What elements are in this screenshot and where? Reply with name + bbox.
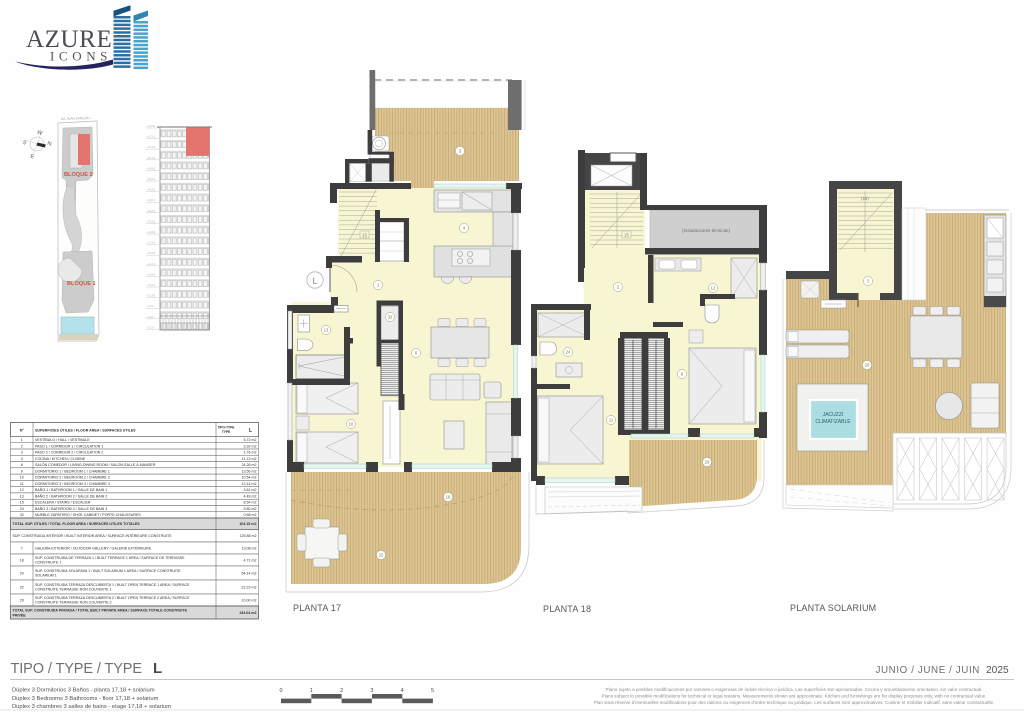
svg-text:+48.00: +48.00	[147, 166, 156, 170]
svg-text:13.14 m2: 13.14 m2	[242, 482, 257, 486]
svg-text:0.68 m2: 0.68 m2	[244, 513, 257, 517]
svg-text:MUEBLE ZAPATERO / SHOE CABINET: MUEBLE ZAPATERO / SHOE CABINET / PORTE-C…	[35, 513, 141, 517]
svg-text:L: L	[312, 276, 317, 286]
svg-text:SUPERFICIES ÚTILES / FLOOR ARE: SUPERFICIES ÚTILES / FLOOR AREA / SURFAC…	[35, 428, 136, 433]
svg-text:Plano sujeto a posibles modifi: Plano sujeto a posibles modificaciones p…	[606, 687, 983, 692]
svg-text:SUP. CONSTRUIDA DE TERRAZA 1 /: SUP. CONSTRUIDA DE TERRAZA 1 / BUILT TER…	[35, 556, 185, 560]
svg-text:15: 15	[362, 233, 367, 238]
svg-text:54.14 m2: 54.14 m2	[242, 571, 257, 575]
svg-text:+21.10: +21.10	[147, 262, 156, 266]
svg-text:ICONS: ICONS	[50, 49, 112, 64]
svg-text:104.15 m2: 104.15 m2	[239, 522, 256, 526]
svg-text:20: 20	[865, 363, 870, 368]
svg-text:125.88 m2: 125.88 m2	[240, 534, 257, 538]
svg-text:ESCALERA / STAIRS / ESCALIER: ESCALERA / STAIRS / ESCALIER	[35, 501, 91, 505]
svg-text:2025: 2025	[986, 665, 1009, 676]
svg-text:(15): (15)	[861, 196, 869, 201]
svg-text:4: 4	[21, 457, 23, 461]
svg-text:+3.10: +3.10	[147, 325, 154, 329]
svg-text:Nº: Nº	[20, 429, 25, 433]
svg-text:15: 15	[624, 233, 629, 238]
svg-text:L: L	[249, 428, 252, 434]
svg-text:10: 10	[20, 476, 24, 480]
svg-text:BAÑO 3 / BATHROOM 3 / SALLE DE: BAÑO 3 / BATHROOM 3 / SALLE DE BAIN 3	[35, 506, 107, 511]
svg-text:+12.00: +12.00	[147, 294, 156, 298]
svg-text:GALERÍA EXTERIOR / OUTDOOR GAL: GALERÍA EXTERIOR / OUTDOOR GALLERY / GAL…	[35, 545, 152, 550]
svg-text:24: 24	[20, 507, 24, 511]
svg-text:3: 3	[370, 688, 373, 694]
svg-text:DORMITORIO 3 / BEDROOM 3 / CHA: DORMITORIO 3 / BEDROOM 3 / CHAMBRE 3	[35, 482, 110, 486]
svg-text:1.76 m2: 1.76 m2	[244, 451, 257, 455]
svg-text:COCINA / KITCHEN / CUISINE: COCINA / KITCHEN / CUISINE	[35, 457, 86, 461]
svg-text:22: 22	[379, 553, 384, 558]
svg-text:+57.10: +57.10	[147, 135, 156, 139]
svg-text:4.71 m2: 4.71 m2	[244, 558, 257, 562]
svg-text:8.54 m2: 8.54 m2	[244, 501, 257, 505]
svg-text:10.54 m2: 10.54 m2	[242, 476, 257, 480]
svg-text:22.23 m2: 22.23 m2	[242, 585, 257, 589]
svg-text:PLANTA SOLARIUM: PLANTA SOLARIUM	[790, 603, 876, 613]
svg-text:Plans subject to possible modi: Plans subject to possible modifications …	[602, 694, 987, 699]
svg-text:JUNIO / JUNE / JUIN: JUNIO / JUNE / JUIN	[876, 665, 980, 676]
svg-text:CLIMATIZABLE: CLIMATIZABLE	[815, 419, 851, 425]
svg-text:29: 29	[705, 460, 710, 465]
svg-text:12: 12	[20, 488, 24, 492]
svg-text:13: 13	[20, 494, 24, 498]
svg-text:+42.00: +42.00	[147, 188, 156, 192]
svg-text:5: 5	[431, 688, 434, 694]
svg-text:TOTAL SUP. CONSTRUIDA PRIVADA: TOTAL SUP. CONSTRUIDA PRIVADA / TOTAL BU…	[13, 609, 188, 613]
svg-text:+18.00: +18.00	[147, 272, 156, 276]
svg-text:(Instalaciones técnicas): (Instalaciones técnicas)	[682, 228, 730, 233]
svg-text:10.00 m2: 10.00 m2	[242, 598, 257, 602]
svg-text:15: 15	[20, 501, 24, 505]
svg-text:6: 6	[21, 463, 23, 467]
svg-text:3.92 m2: 3.92 m2	[244, 444, 257, 448]
svg-text:3.61 m2: 3.61 m2	[244, 488, 257, 492]
svg-text:2: 2	[21, 444, 23, 448]
svg-text:10: 10	[349, 422, 354, 427]
svg-text:20: 20	[20, 571, 24, 575]
svg-text:Duplex 3 Bedrooms 3 Bathrooms: Duplex 3 Bedrooms 3 Bathrooms - floor 17…	[12, 696, 159, 702]
svg-text:+6.00: +6.00	[147, 315, 154, 319]
svg-text:CONSTRUITE TERRASSE NON COUVER: CONSTRUITE TERRASSE NON COUVERTE 2	[35, 601, 112, 605]
svg-text:SUP. CONSTRUIDA INTERIOR / BUI: SUP. CONSTRUIDA INTERIOR / BUILT INTERIO…	[13, 533, 173, 538]
svg-text:5.72 m2: 5.72 m2	[244, 438, 257, 442]
svg-text:+9.10: +9.10	[147, 304, 154, 308]
svg-text:1: 1	[310, 688, 313, 694]
svg-text:0: 0	[279, 688, 282, 694]
svg-text:Duplex 3 chambres 3 salles de: Duplex 3 chambres 3 salles de bains - et…	[12, 704, 171, 710]
svg-text:11.13 m2: 11.13 m2	[242, 457, 257, 461]
svg-text:BLOQUE 1: BLOQUE 1	[67, 281, 96, 287]
svg-text:SOLARIUM 1: SOLARIUM 1	[35, 574, 57, 578]
svg-text:+30.00: +30.00	[147, 230, 156, 234]
svg-text:12: 12	[711, 286, 716, 291]
svg-text:Plan sous réserve d'éventuelle: Plan sous réserve d'éventuelles modifica…	[594, 700, 995, 705]
svg-text:PASO 1 / CORRIDOR 1 / CIRCULAT: PASO 1 / CORRIDOR 1 / CIRCULATION 1	[35, 444, 103, 448]
svg-text:+45.10: +45.10	[147, 177, 156, 181]
svg-text:TIPO-TYPE: TIPO-TYPE	[218, 426, 235, 430]
svg-text:11: 11	[20, 482, 24, 486]
svg-text:BLOQUE 2: BLOQUE 2	[64, 172, 93, 178]
svg-text:22: 22	[20, 585, 24, 589]
svg-text:+60.00: +60.00	[147, 124, 156, 128]
svg-text:TIPO / TYPE / TYPE: TIPO / TYPE / TYPE	[11, 661, 143, 677]
svg-text:32: 32	[20, 513, 24, 517]
svg-text:VESTÍBULO / HALL / VESTIBULE: VESTÍBULO / HALL / VESTIBULE	[35, 438, 90, 442]
svg-text:JACUZZI: JACUZZI	[823, 412, 844, 418]
svg-text:SALÓN COMEDOR / LIVING-DINING: SALÓN COMEDOR / LIVING-DINING ROOM / SAL…	[35, 462, 156, 467]
svg-text:18: 18	[446, 495, 451, 500]
svg-text:CONSTRUITE 1: CONSTRUITE 1	[35, 561, 61, 565]
svg-text:CONSTRUITE TERRASSE NON COUVER: CONSTRUITE TERRASSE NON COUVERTE 1	[35, 588, 112, 592]
svg-text:5.80 m2: 5.80 m2	[244, 507, 257, 511]
svg-text:Dúplex 3 Dormitorios 3 Baños -: Dúplex 3 Dormitorios 3 Baños - planta 17…	[12, 688, 155, 694]
svg-text:7: 7	[21, 546, 23, 550]
svg-text:32: 32	[388, 315, 393, 320]
svg-text:24: 24	[566, 350, 571, 355]
svg-text:4.49 m2: 4.49 m2	[244, 494, 257, 498]
svg-text:+36.00: +36.00	[147, 209, 156, 213]
svg-text:13.08 m2: 13.08 m2	[242, 546, 257, 550]
svg-text:+24.00: +24.00	[147, 251, 156, 255]
svg-text:SUP. CONSTRUIDA TERRAZA DESCUB: SUP. CONSTRUIDA TERRAZA DESCUBIERTA 1 / …	[35, 583, 190, 587]
svg-text:+39.10: +39.10	[147, 198, 156, 202]
svg-text:PLANTA 18: PLANTA 18	[543, 604, 591, 614]
svg-text:234.04 m2: 234.04 m2	[239, 611, 256, 615]
svg-text:3: 3	[21, 451, 23, 455]
svg-text:13.56 m2: 13.56 m2	[242, 469, 257, 473]
svg-text:4: 4	[401, 688, 404, 694]
svg-text:+51.10: +51.10	[147, 156, 156, 160]
svg-text:+15.10: +15.10	[147, 283, 156, 287]
svg-text:DORMITORIO 1 / BEDROOM 1 / CHA: DORMITORIO 1 / BEDROOM 1 / CHAMBRE 1	[35, 469, 110, 473]
svg-text:SUP. CONSTRUIDA SOLARIUM 1 / B: SUP. CONSTRUIDA SOLARIUM 1 / BUILT SOLAR…	[35, 569, 181, 573]
svg-text:SUP. CONSTRUIDA TERRAZA DESCUB: SUP. CONSTRUIDA TERRAZA DESCUBIERTA 2 / …	[35, 596, 190, 600]
svg-text:24.26 m2: 24.26 m2	[242, 463, 257, 467]
svg-text:2: 2	[340, 688, 343, 694]
svg-text:PASO 2 / CORRIDOR 2 / CIRCULAT: PASO 2 / CORRIDOR 2 / CIRCULATION 2	[35, 451, 103, 455]
svg-text:9: 9	[21, 469, 23, 473]
svg-text:+27.10: +27.10	[147, 241, 156, 245]
svg-text:PLANTA 17: PLANTA 17	[293, 603, 341, 613]
svg-text:DORMITORIO 2 / BEDROOM 2 / CHA: DORMITORIO 2 / BEDROOM 2 / CHAMBRE 2	[35, 476, 110, 480]
svg-text:L: L	[153, 660, 162, 677]
svg-text:13: 13	[324, 328, 329, 333]
svg-text:PRIVÉE: PRIVÉE	[13, 613, 27, 618]
svg-text:11: 11	[609, 418, 614, 423]
svg-text:TOTAL SUP. ÚTILES / TOTAL FLOO: TOTAL SUP. ÚTILES / TOTAL FLOOR AREA / S…	[13, 521, 141, 526]
svg-text:29: 29	[20, 598, 24, 602]
svg-text:BAÑO 1 / BATHROOM 1 / SALLE DE: BAÑO 1 / BATHROOM 1 / SALLE DE BAIN 1	[35, 487, 107, 492]
svg-text:+33.10: +33.10	[147, 219, 156, 223]
svg-text:BAÑO 2 / BATHROOM 2 / SALLE DE: BAÑO 2 / BATHROOM 2 / SALLE DE BAIN 2	[35, 493, 107, 498]
svg-text:+54.00: +54.00	[147, 145, 156, 149]
svg-text:1: 1	[21, 438, 23, 442]
svg-text:TYPE: TYPE	[222, 430, 230, 434]
svg-text:18: 18	[20, 558, 24, 562]
